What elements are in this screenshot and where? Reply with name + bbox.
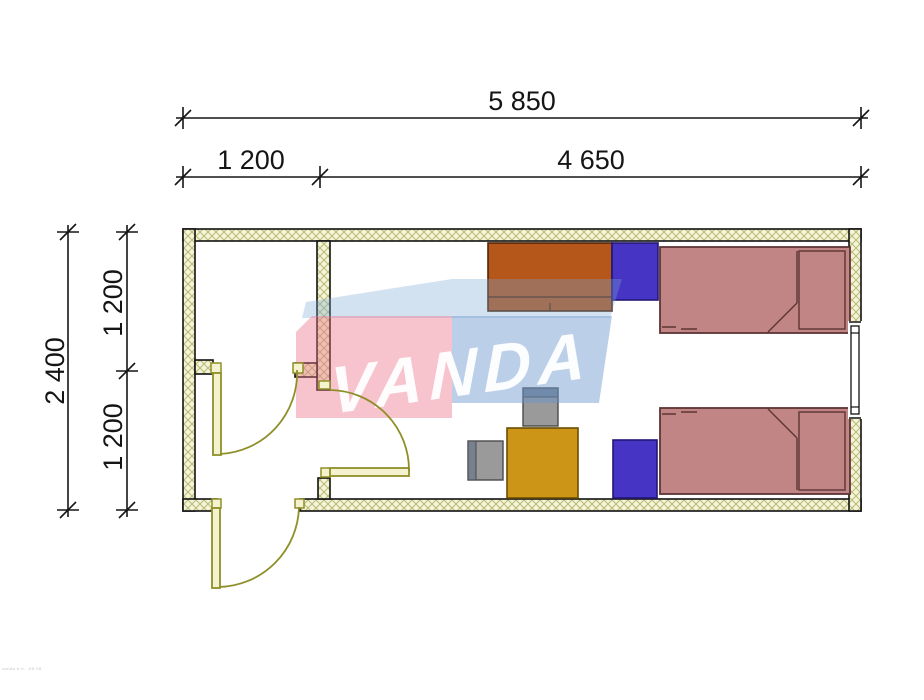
bed-1-pillow (799, 251, 845, 329)
door-leaf-smallroom (213, 373, 221, 455)
door-jamb-cap (321, 468, 330, 477)
wardrobe-top (612, 243, 658, 300)
wall-top (183, 229, 861, 241)
door-leaf-entrance (212, 508, 220, 588)
bed-2 (660, 408, 850, 494)
watermark-top-face (302, 279, 622, 318)
door-jamb-cap (293, 363, 303, 373)
door-jamb-cap (211, 363, 221, 373)
dim-label-segment-left: 1 200 (217, 145, 285, 175)
bed-2-pillow (799, 412, 845, 490)
chair-2 (468, 441, 503, 480)
door-arc-entrance (219, 507, 299, 587)
dim-label-height-lower: 1 200 (98, 403, 128, 471)
window (848, 321, 862, 419)
dim-label-total-width: 5 850 (488, 86, 556, 116)
chair-2-backrest (468, 441, 476, 480)
bed-1 (660, 247, 850, 333)
wall-bottom-main (300, 499, 861, 511)
fine-print-note: vanda b.b. -05 08 (2, 666, 42, 671)
dim-label-segment-right: 4 650 (557, 145, 625, 175)
window-frame (851, 326, 859, 414)
dim-label-total-height: 2 400 (40, 337, 70, 405)
vanda-watermark: VANDA (296, 279, 622, 429)
door-jamb-cap (212, 499, 221, 508)
wall-left (183, 229, 195, 511)
wardrobe-bottom (613, 440, 657, 498)
floorplan-svg: VANDA (0, 0, 924, 700)
door-leaf-mainroom (330, 468, 409, 476)
floorplan-drawing: VANDA (0, 0, 924, 700)
door-jamb-cap (295, 499, 304, 508)
dim-label-height-upper: 1 200 (98, 269, 128, 337)
wall-bottom-stub (318, 478, 330, 499)
desk (507, 428, 578, 498)
door-jamb-cap (319, 381, 330, 389)
door-arc-smallroom (220, 370, 297, 454)
